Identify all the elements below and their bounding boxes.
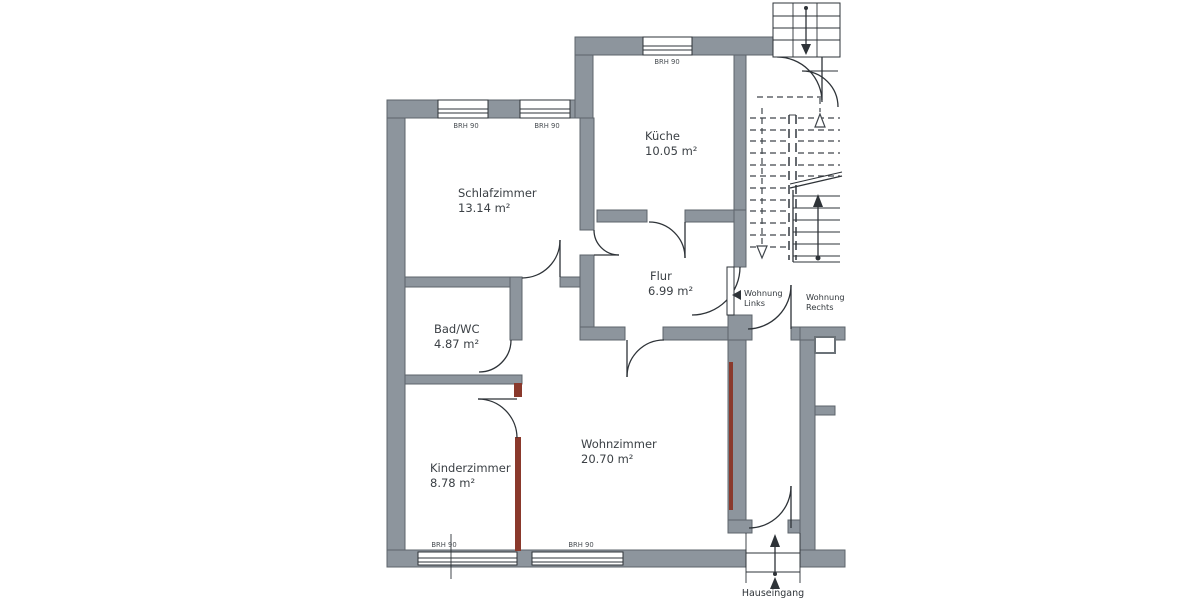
stair-treads-upper-dashed [750,97,840,247]
room-area: 8.78 m² [430,476,475,490]
window-sill-label: BRH 90 [534,122,559,130]
outer-wall-bottom-right [800,550,845,567]
room-area: 20.70 m² [581,452,633,466]
apartment-right-label: Wohnung Rechts [806,292,845,312]
exterior-steps-top [773,3,840,57]
wall-flur-south-right [663,327,728,340]
stair-treads-lower-solid [790,172,842,262]
room-label: Schlafzimmer [458,186,537,200]
floor-plan: Schlafzimmer 13.14 m² Küche 10.05 m² Flu… [0,0,1200,600]
room-bad-wc: Bad/WC 4.87 m² [434,322,480,351]
door-house-entrance [749,486,791,528]
window-kueche [643,37,692,55]
room-label: Bad/WC [434,322,480,336]
room-kinderzimmer: Kinderzimmer 8.78 m² [430,461,511,490]
wall-rechts-door-stub [791,327,800,340]
outer-wall-left [387,100,405,567]
wall-corridor-east [800,340,815,553]
entrance-vestibule [746,533,800,589]
window-schlafzimmer-2 [520,100,570,118]
window-kinderzimmer [418,552,517,565]
stairs-up-arrow-icon [813,98,825,261]
niche-right [815,337,835,353]
red-wall-kinderzimmer-wohnzimmer [515,437,521,551]
window-wohnzimmer [532,552,623,565]
room-area: 4.87 m² [434,337,479,351]
door-schlafzimmer-flur [594,230,619,255]
door-frame-left [728,520,752,533]
apartment-right-line1: Wohnung [806,292,845,302]
wall-schlafzimmer-kueche [580,118,594,230]
window-sill-label: BRH 90 [431,541,456,549]
wall-kueche-bottom-left [597,210,647,222]
wall-badwc-right [510,277,522,340]
wall-badwc-top [405,277,522,287]
window-schlafzimmer-1 [438,100,488,118]
entrance-arrow-icon [770,534,780,589]
wall-badwc-bottom [405,375,522,384]
room-label: Küche [645,129,680,143]
room-area: 13.14 m² [458,201,510,215]
room-flur: Flur 6.99 m² [648,269,693,298]
house-entrance-label: Hauseingang [742,588,804,599]
room-labels: Schlafzimmer 13.14 m² Küche 10.05 m² Flu… [430,129,697,490]
wall-schlafzimmer-door-stub [560,277,580,287]
wall-flur-corner-block [728,315,752,340]
door-schlafzimmer [522,240,560,278]
wall-flur-south-left [580,327,625,340]
room-schlafzimmer: Schlafzimmer 13.14 m² [458,186,537,215]
door-rear-exit [777,57,822,102]
door-kinderzimmer [478,399,517,438]
window-sill-label: BRH 90 [654,58,679,66]
wall-kueche-right [734,55,746,210]
room-wohnzimmer: Wohnzimmer 20.70 m² [581,437,657,466]
windows [418,37,692,579]
door-kueche [649,222,685,258]
apartment-left-line1: Wohnung [744,288,783,298]
window-sill-label: BRH 90 [568,541,593,549]
red-wall-block [514,383,522,397]
apartment-left-label: Wohnung Links [732,288,783,308]
room-area: 10.05 m² [645,144,697,158]
door-bad-wc [479,340,511,372]
room-area: 6.99 m² [648,284,693,298]
window-sill-label: BRH 90 [453,122,478,130]
room-label: Kinderzimmer [430,461,511,475]
room-kueche: Küche 10.05 m² [645,129,697,158]
red-wall-corridor-edge [729,362,733,510]
room-label: Flur [650,269,672,283]
wall-flur-west [580,255,594,337]
wall-stub-right [815,406,835,415]
apartment-right-line2: Rechts [806,302,834,312]
floor-plan-page: Schlafzimmer 13.14 m² Küche 10.05 m² Flu… [0,0,1200,600]
door-wohnzimmer [627,340,664,377]
door-apartment-left [692,267,740,315]
room-label: Wohnzimmer [581,437,657,451]
wall-flur-east-upper [734,210,746,267]
apartment-left-line2: Links [744,298,765,308]
